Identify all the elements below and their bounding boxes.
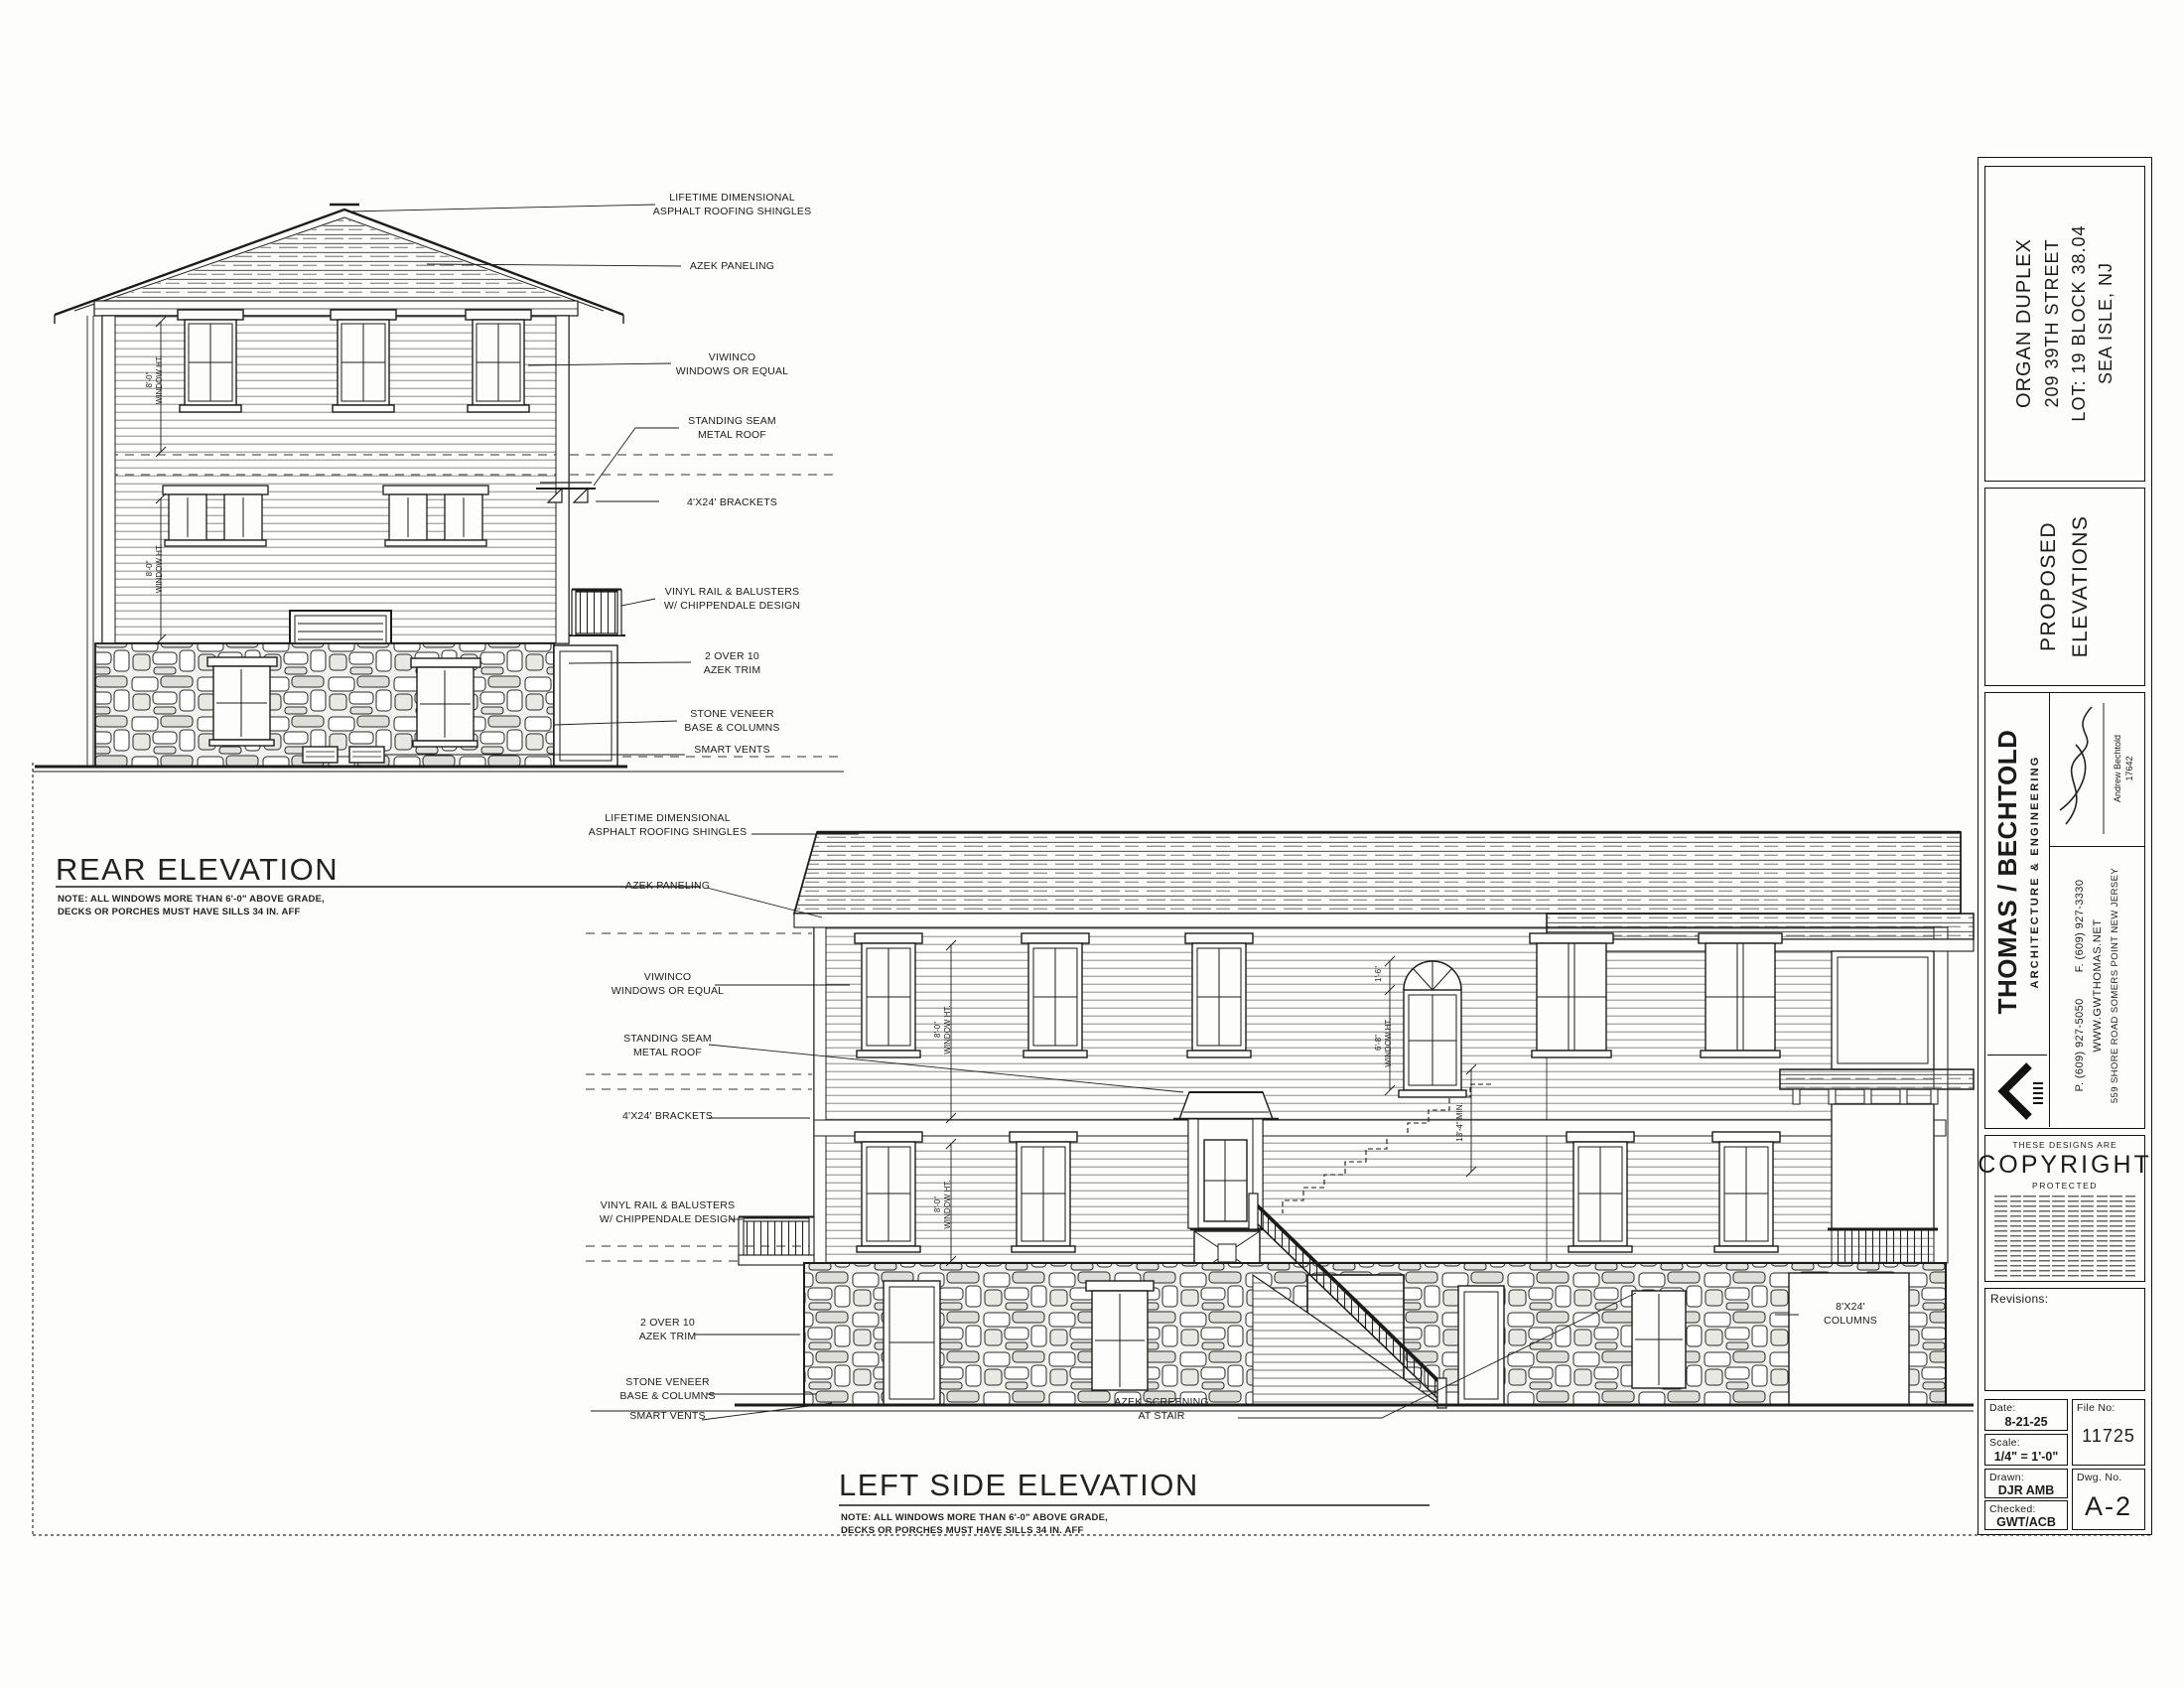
callout-brackets-rear: 4'X24' BRACKETS [650,496,814,510]
project-info-text: ORGAN DUPLEX 209 39TH STREET LOT: 19 BLO… [1985,167,2143,480]
copyright-fineprint [1994,1196,2135,1279]
callout-azek-trim-left: 2 OVER 10 AZEK TRIM [586,1317,750,1343]
firm-address: 559 SHORE ROAD SOMERS POINT NEW JERSEY [2110,868,2120,1103]
signature-box: Andrew Bechtold 17642 [2049,693,2145,847]
signature-name: Andrew Bechtold [2113,735,2124,802]
firm-contact-text: P. (609) 927-5050 F. (609) 927-3330 WWW.… [2050,846,2143,1125]
firm-website: WWW.GWTHOMAS.NET [2092,918,2104,1052]
callout-azek-trim-rear: 2 OVER 10 AZEK TRIM [650,650,814,677]
sheet-title-box: PROPOSED ELEVATIONS [1984,488,2145,686]
sheet-artwork [0,0,2184,1688]
file-no-value: 11725 [2073,1426,2144,1447]
dim-window-height-rear-upper: 8'-0" WINDOW HT. [145,338,165,422]
callout-stone-rear: STONE VENEER BASE & COLUMNS [650,708,814,735]
callout-shingles-left: LIFETIME DIMENSIONAL ASPHALT ROOFING SHI… [586,812,750,839]
project-lot-block: LOT: 19 BLOCK 38.04 [2069,224,2090,421]
title-block: ORGAN DUPLEX 209 39TH STREET LOT: 19 BLO… [1978,157,2152,1535]
dim-window-height-left-lower: 8'-0" WINDOW HT. [933,1160,953,1249]
firm-name: THOMAS / BECHTOLD [1992,730,2023,1015]
drawn-value: DJR AMB [1985,1483,2067,1497]
rear-elevation-note: NOTE: ALL WINDOWS MORE THAN 6'-0" ABOVE … [58,893,325,919]
signature-name-block: Andrew Bechtold 17642 [2108,693,2141,844]
dim-window-height-left-upper: 8'-0" WINDOW HT. [933,985,953,1074]
callout-screening: AZEK SCREENING AT STAIR [1087,1396,1236,1423]
callout-vents-left: SMART VENTS [586,1410,750,1424]
firm-fax: F. (609) 927-3330 [2074,880,2086,973]
drawn-box: Drawn: DJR AMB [1984,1469,2068,1498]
copyright-line1: THESE DESIGNS ARE [2012,1140,2116,1150]
sheet-title-text: PROPOSED ELEVATIONS [1985,489,2143,684]
firm-phone: P. (609) 927-5050 [2074,998,2086,1091]
firm-box: THOMAS / BECHTOLD ARCHITECTURE & ENGINEE… [1984,692,2145,1129]
file-no-box: File No: 11725 [2072,1399,2145,1466]
callout-rail-left: VINYL RAIL & BALUSTERS W/ CHIPPENDALE DE… [586,1199,750,1226]
firm-logo [1987,1055,2047,1127]
callout-windows-left: VIWINCO WINDOWS OR EQUAL [586,971,750,998]
callout-vents-rear: SMART VENTS [650,744,814,758]
scale-box: Scale: 1/4" = 1'-0" [1984,1434,2068,1466]
callout-azek-paneling-rear: AZEK PANELING [650,260,814,274]
dim-window-height-rear-lower: 8'-0" WINDOW HT. [145,526,165,611]
date-label: Date: [1989,1402,2016,1414]
project-name: ORGAN DUPLEX [2013,238,2036,408]
callout-azek-paneling-left: AZEK PANELING [586,880,750,894]
fields-grid: Date: 8-21-25 Scale: 1/4" = 1'-0" Drawn:… [1984,1397,2145,1530]
copyright-line2: COPYRIGHT [1978,1151,2152,1180]
dwg-no-box: Dwg. No. A-2 [2072,1469,2145,1530]
dim-stair-min: 13'-4" MIN. [1455,1074,1465,1170]
dim-arch-window-height: 6'-8" WINDOW HT. [1374,998,1394,1087]
rear-elevation-title: REAR ELEVATION [56,852,339,888]
checked-box: Checked: GWT/ACB [1984,1500,2068,1530]
dim-arch-top: 1'-6" [1374,957,1384,991]
project-info-box: ORGAN DUPLEX 209 39TH STREET LOT: 19 BLO… [1984,166,2145,482]
project-street: 209 39TH STREET [2042,238,2063,407]
signature-scribble [2050,693,2110,844]
callout-stone-left: STONE VENEER BASE & COLUMNS [586,1376,750,1403]
callout-windows-rear: VIWINCO WINDOWS OR EQUAL [650,352,814,378]
firm-name-block: THOMAS / BECHTOLD ARCHITECTURE & ENGINEE… [1985,693,2047,1051]
revisions-label: Revisions: [1990,1292,2048,1306]
dwg-no-label: Dwg. No. [2077,1472,2122,1483]
callout-metal-roof-rear: STANDING SEAM METAL ROOF [650,415,814,442]
revisions-box: Revisions: [1984,1288,2145,1391]
checked-label: Checked: [1989,1503,2036,1515]
file-no-label: File No: [2077,1402,2116,1414]
scale-value: 1/4" = 1'-0" [1985,1450,2067,1464]
chevron-logo-icon [1987,1055,2047,1127]
project-city: SEA ISLE, NJ [2096,262,2116,384]
drawing-sheet: REAR ELEVATION NOTE: ALL WINDOWS MORE TH… [0,0,2184,1688]
sheet-title-line2: ELEVATIONS [2069,515,2093,658]
drawn-label: Drawn: [1989,1472,2024,1483]
callout-columns: 8'X24' COLUMNS [1801,1301,1900,1328]
date-box: Date: 8-21-25 [1984,1399,2068,1431]
dwg-no-value: A-2 [2073,1491,2144,1522]
callout-brackets-left: 4'X24' BRACKETS [586,1110,750,1124]
firm-contact-box: P. (609) 927-5050 F. (609) 927-3330 WWW.… [2049,846,2145,1127]
callout-metal-roof-left: STANDING SEAM METAL ROOF [586,1033,750,1059]
date-value: 8-21-25 [1985,1415,2067,1429]
sheet-title-line1: PROPOSED [2037,521,2061,651]
left-elevation-note: NOTE: ALL WINDOWS MORE THAN 6'-0" ABOVE … [841,1511,1108,1538]
callout-rail-rear: VINYL RAIL & BALUSTERS W/ CHIPPENDALE DE… [650,586,814,613]
left-side-elevation-drawing [586,832,1974,1505]
checked-value: GWT/ACB [1985,1515,2067,1529]
callout-shingles-rear: LIFETIME DIMENSIONAL ASPHALT ROOFING SHI… [650,192,814,218]
scale-label: Scale: [1989,1437,2020,1449]
left-elevation-title: LEFT SIDE ELEVATION [839,1468,1199,1503]
firm-tagline: ARCHITECTURE & ENGINEERING [2029,755,2041,988]
signature-license: 17642 [2124,756,2136,780]
copyright-box: THESE DESIGNS ARE COPYRIGHT PROTECTED [1984,1135,2145,1282]
copyright-line3: PROTECTED [2032,1181,2098,1191]
